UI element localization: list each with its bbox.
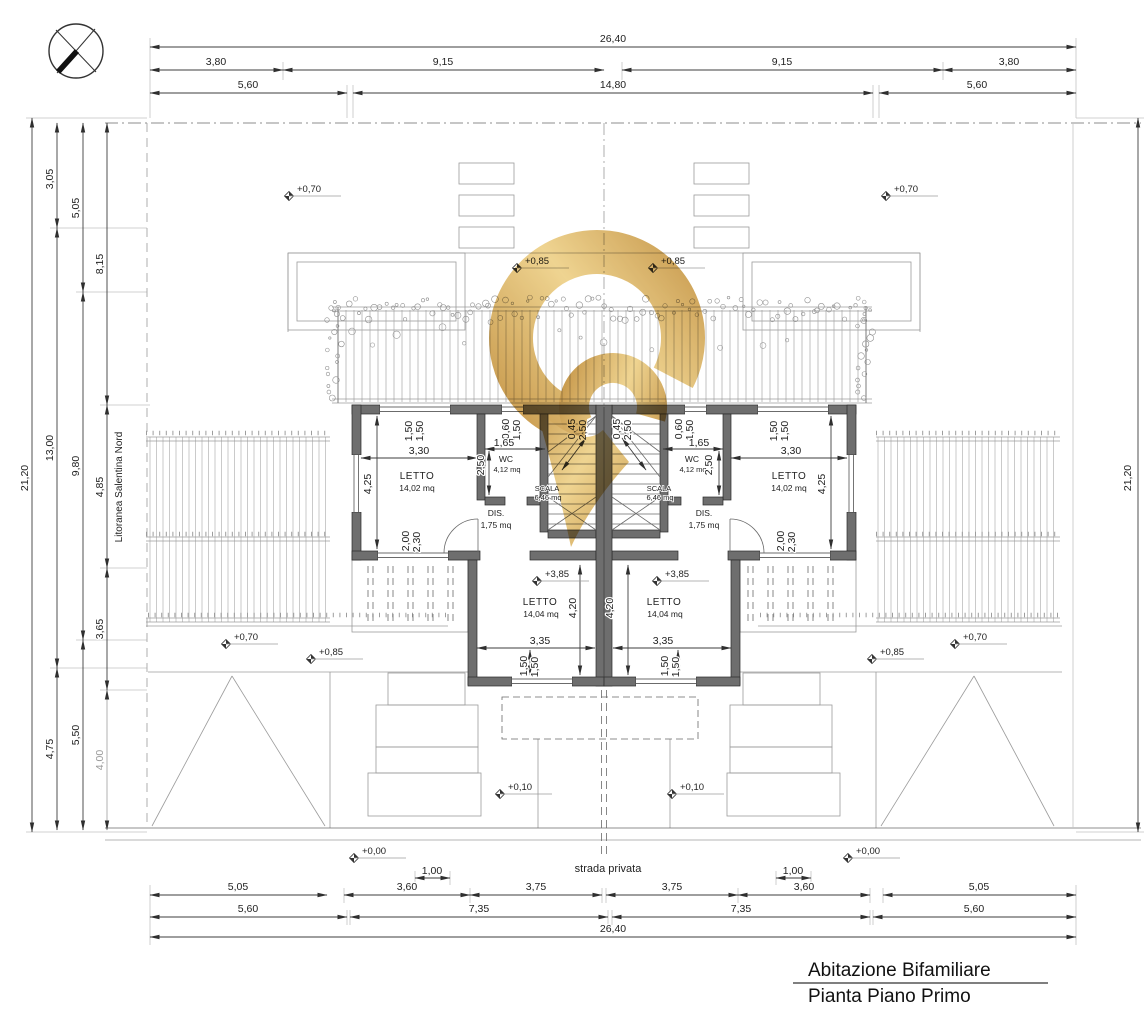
street-label: strada privata (575, 863, 643, 875)
elevation-marker: +0,10 (496, 782, 553, 799)
dim-text: 3,30 (409, 445, 430, 457)
room-scala-left: SCALA (535, 484, 560, 493)
elevation-value: +0,70 (297, 184, 321, 195)
dim-text: 7,35 (731, 903, 752, 915)
dim-text: 3,35 (530, 635, 551, 647)
dim-text: 3,80 (999, 56, 1020, 68)
dim-total-height-right: 21,20 (1122, 465, 1134, 491)
elevation-value: +3,85 (665, 569, 689, 580)
elevation-marker: +0,70 (882, 184, 939, 201)
dim-text: 2,30 (786, 532, 798, 553)
dim-text: 4,75 (44, 739, 56, 760)
dim-total-width-bottom: 26,40 (600, 923, 626, 935)
elevation-marker: +0,70 (285, 184, 342, 201)
dim-text: 4,20 (604, 598, 616, 619)
dim-text: 3,75 (526, 881, 547, 893)
dim-text: 1,65 (689, 437, 710, 449)
dim-total-width: 26,40 (600, 33, 626, 45)
dim-text: 3,60 (794, 881, 815, 893)
dim-text: 1,00 (783, 865, 804, 877)
room-wc-left-area: 4,12 mq (493, 465, 520, 474)
elevation-marker: +0,00 (844, 846, 901, 863)
dim-text: 1,50 (779, 421, 791, 442)
north-arrow-icon (49, 24, 103, 78)
dim-text: 5,60 (238, 79, 259, 91)
elevation-marker: +0,85 (307, 647, 364, 664)
elevation-value: +0,10 (508, 782, 532, 793)
room-dis-left-area: 1,75 mq (481, 520, 512, 530)
drawing-subtitle: Pianta Piano Primo (808, 986, 971, 1007)
dim-text: 8,15 (94, 254, 106, 275)
dim-text: 3,35 (653, 635, 674, 647)
dim-text: 5,05 (969, 881, 990, 893)
dim-text: 5,05 (70, 198, 82, 219)
room-letto-left-area: 14,02 mq (399, 483, 435, 493)
room-scala-right: SCALA (647, 484, 672, 493)
dim-text: 4,25 (362, 474, 374, 495)
room-letto-front-right-area: 14,04 mq (647, 609, 683, 619)
elevation-marker: +3,85 (653, 569, 710, 586)
dim-text: 5,60 (238, 903, 259, 915)
drawing-title: Abitazione Bifamiliare (808, 960, 991, 981)
elevation-marker: +0,70 (951, 632, 1008, 649)
elevation-value: +3,85 (545, 569, 569, 580)
room-scala-left-area: 6,46 mq (534, 493, 561, 502)
room-dis-right: DIS. (696, 508, 713, 518)
dim-text: 3,65 (94, 619, 106, 640)
floor-plan-drawing: 26,40 3,80 9,15 9,15 3,80 5,60 14,80 5,6… (0, 0, 1146, 1016)
dim-text: 9,15 (433, 56, 454, 68)
dim-text: 9,15 (772, 56, 793, 68)
elevation-marker: +0,10 (668, 782, 725, 799)
left-dimension-chain: 21,20 3,05 13,00 4,75 5,05 9,80 5,50 8,1… (19, 169, 125, 771)
room-wc-right: WC (685, 454, 699, 464)
dim-text: 5,60 (967, 79, 988, 91)
dim-text: 5,05 (228, 881, 249, 893)
dim-text: 4,00 (94, 750, 106, 771)
dim-text: 1,50 (414, 421, 426, 442)
dim-text: 5,50 (70, 725, 82, 746)
elevation-value: +0,10 (680, 782, 704, 793)
room-scala-right-area: 6,46 mq (646, 493, 673, 502)
elevation-marker: +0,85 (868, 647, 925, 664)
room-letto-front-left: LETTO (523, 597, 558, 608)
dim-text: 4,20 (567, 598, 579, 619)
dim-text: 14,80 (600, 79, 626, 91)
dim-text: 1,00 (422, 865, 443, 877)
dim-text: 2,50 (475, 455, 487, 476)
dim-text: 1,50 (670, 657, 682, 678)
dim-text: 5,60 (964, 903, 985, 915)
road-label: Litoranea Salentina Nord (114, 432, 125, 543)
room-wc-left: WC (499, 454, 513, 464)
elevation-value: +0,70 (894, 184, 918, 195)
elevation-value: +0,70 (963, 632, 987, 643)
dim-text: 2,50 (622, 420, 634, 441)
title-block: Abitazione Bifamiliare Pianta Piano Prim… (793, 960, 1048, 1007)
elevation-marker: +0,00 (350, 846, 407, 863)
room-letto-right: LETTO (772, 471, 807, 482)
elevation-markers: +0,70 +0,70 +0,85 +0,85 +0,70 +0,85 +0,8… (222, 184, 1008, 863)
elevation-value: +0,00 (856, 846, 880, 857)
dim-text: 4,25 (816, 474, 828, 495)
elevation-marker: +0,70 (222, 632, 279, 649)
elevation-marker: +3,85 (533, 569, 590, 586)
dim-text: 3,05 (44, 169, 56, 190)
dim-text: 13,00 (44, 435, 56, 461)
dim-text: 1,50 (529, 657, 541, 678)
dim-text: 2,30 (411, 532, 423, 553)
room-letto-right-area: 14,02 mq (771, 483, 807, 493)
room-letto-front-left-area: 14,04 mq (523, 609, 559, 619)
floor-plan-sheet: 26,40 3,80 9,15 9,15 3,80 5,60 14,80 5,6… (0, 0, 1146, 1016)
room-dis-right-area: 1,75 mq (689, 520, 720, 530)
dim-text: 3,75 (662, 881, 683, 893)
dim-total-height: 21,20 (19, 465, 31, 491)
dim-text: 1,65 (494, 437, 515, 449)
elevation-value: +0,85 (319, 647, 343, 658)
room-dis-left: DIS. (488, 508, 505, 518)
room-letto-left: LETTO (400, 471, 435, 482)
top-dimension-chain: 26,40 3,80 9,15 9,15 3,80 5,60 14,80 5,6… (206, 33, 1020, 91)
dim-text: 2,50 (703, 455, 715, 476)
dim-text: 4,85 (94, 477, 106, 498)
elevation-value: +0,85 (880, 647, 904, 658)
dim-text: 9,80 (70, 456, 82, 477)
bottom-dimension-chain: 5,05 3,60 3,75 3,75 3,60 5,05 1,00 1,00 … (228, 863, 990, 935)
right-dimension-chain: 21,20 (1122, 465, 1134, 491)
dim-text: 7,35 (469, 903, 490, 915)
dim-text: 3,60 (397, 881, 418, 893)
elevation-value: +0,00 (362, 846, 386, 857)
dim-text: 3,30 (781, 445, 802, 457)
elevation-value: +0,70 (234, 632, 258, 643)
dim-text: 3,80 (206, 56, 227, 68)
room-letto-front-right: LETTO (647, 597, 682, 608)
